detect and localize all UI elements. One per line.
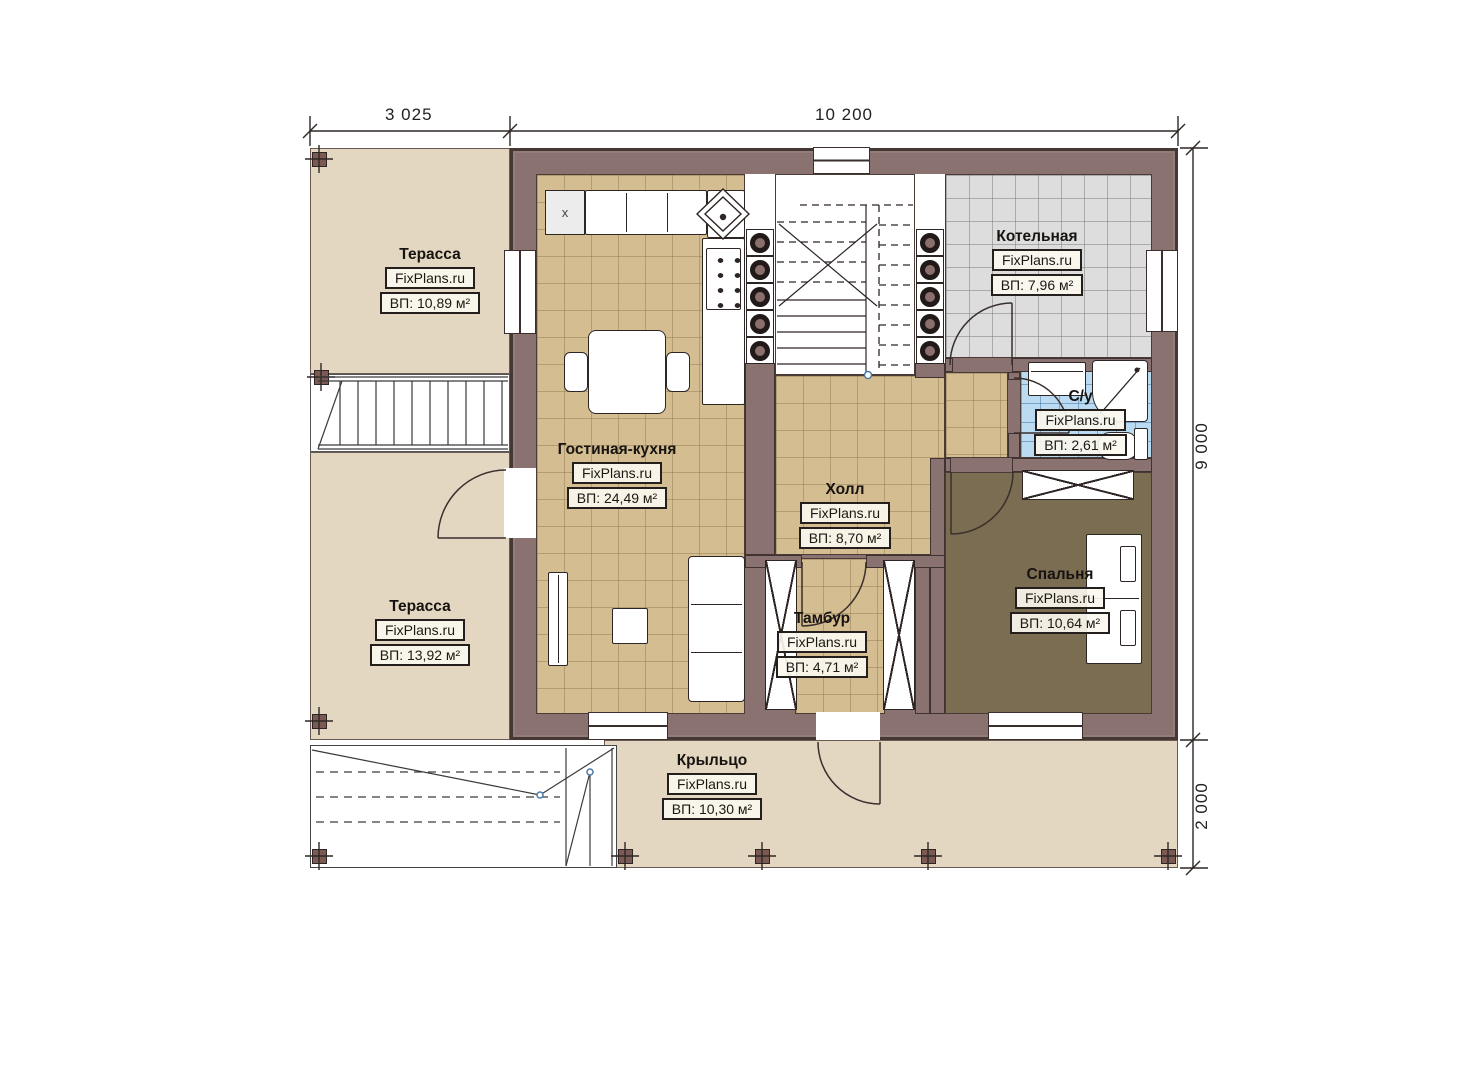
room-label-living-kitchen: Гостиная-кухня FixPlans.ru ВП: 24,49 м² bbox=[527, 441, 707, 509]
area-box: ВП: 13,92 м² bbox=[370, 644, 470, 666]
area-box: ВП: 8,70 м² bbox=[799, 527, 892, 549]
terrace-bottom-floor bbox=[310, 452, 510, 740]
room-name: Котельная bbox=[996, 228, 1077, 246]
room-label-boiler: Котельная FixPlans.ru ВП: 7,96 м² bbox=[947, 228, 1127, 296]
watermark-box: FixPlans.ru bbox=[777, 631, 867, 653]
kitchen-counter-corner bbox=[707, 190, 745, 238]
wall-bathroom-left-top bbox=[1008, 372, 1020, 380]
dim-top-left: 3 025 bbox=[385, 105, 433, 125]
log-column-icon bbox=[750, 260, 770, 280]
room-label-tambour: Тамбур FixPlans.ru ВП: 4,71 м² bbox=[762, 610, 882, 678]
stairwell-floor bbox=[775, 174, 915, 375]
post bbox=[312, 849, 327, 864]
dining-table bbox=[588, 330, 666, 414]
watermark-box: FixPlans.ru bbox=[1015, 587, 1105, 609]
room-label-terrace-top: Терасса FixPlans.ru ВП: 10,89 м² bbox=[330, 246, 530, 314]
canopy-roof-plan bbox=[310, 745, 617, 868]
column-cell bbox=[916, 337, 944, 364]
kitchen-counter-top bbox=[585, 190, 707, 235]
area-box: ВП: 4,71 м² bbox=[776, 656, 869, 678]
kitchen-cabinet-mark: x bbox=[545, 190, 585, 235]
room-name: Тамбур bbox=[794, 610, 850, 628]
post bbox=[312, 714, 327, 729]
chair bbox=[564, 352, 588, 392]
dim-right-upper: 9 000 bbox=[1192, 422, 1212, 470]
column-cell bbox=[746, 283, 774, 310]
sofa bbox=[688, 556, 745, 702]
coffee-table bbox=[612, 608, 648, 644]
area-box: ВП: 10,89 м² bbox=[380, 292, 480, 314]
wall-boiler-stub bbox=[945, 358, 953, 372]
window-top-stair bbox=[813, 147, 870, 174]
watermark-box: FixPlans.ru bbox=[572, 462, 662, 484]
log-column-icon bbox=[750, 287, 770, 307]
post bbox=[921, 849, 936, 864]
area-box: ВП: 24,49 м² bbox=[567, 487, 667, 509]
room-label-porch: Крыльцо FixPlans.ru ВП: 10,30 м² bbox=[622, 752, 802, 820]
stove bbox=[706, 248, 741, 310]
room-label-hall: Холл FixPlans.ru ВП: 8,70 м² bbox=[765, 481, 925, 549]
entrance-door-opening bbox=[816, 712, 880, 740]
log-column-icon bbox=[750, 341, 770, 361]
tv-stand bbox=[548, 572, 568, 666]
post bbox=[618, 849, 633, 864]
floor-plan-canvas: x bbox=[0, 0, 1473, 1080]
log-column-icon bbox=[920, 260, 940, 280]
watermark-box: FixPlans.ru bbox=[375, 619, 465, 641]
column-cell bbox=[916, 229, 944, 256]
column-cell bbox=[746, 337, 774, 364]
wardrobe-right bbox=[883, 560, 915, 710]
room-name: Терасса bbox=[389, 598, 450, 616]
bedroom-wardrobe bbox=[1022, 470, 1134, 500]
column-cell bbox=[916, 256, 944, 283]
column-cell bbox=[746, 229, 774, 256]
wall-bedroom-left bbox=[930, 458, 945, 714]
column-cell bbox=[746, 256, 774, 283]
hall-corridor-floor bbox=[945, 372, 1008, 458]
watermark-box: FixPlans.ru bbox=[385, 267, 475, 289]
column-cell bbox=[916, 283, 944, 310]
log-column-icon bbox=[750, 314, 770, 334]
room-name: С/у bbox=[1068, 388, 1092, 406]
column-cell bbox=[746, 310, 774, 337]
watermark-box: FixPlans.ru bbox=[667, 773, 757, 795]
log-column-icon bbox=[920, 233, 940, 253]
room-name: Холл bbox=[826, 481, 865, 499]
wall-stub-right-column bbox=[915, 363, 945, 378]
area-box: ВП: 2,61 м² bbox=[1034, 434, 1127, 456]
area-box: ВП: 10,64 м² bbox=[1010, 612, 1110, 634]
post bbox=[314, 370, 329, 385]
dim-right-lower: 2 000 bbox=[1192, 782, 1212, 830]
window-right-boiler bbox=[1146, 250, 1178, 332]
chair bbox=[666, 352, 690, 392]
exterior-stair bbox=[310, 374, 510, 452]
log-column-icon bbox=[920, 314, 940, 334]
wall-tambour-right bbox=[915, 555, 930, 714]
area-box: ВП: 7,96 м² bbox=[991, 274, 1084, 296]
log-column-icon bbox=[920, 341, 940, 361]
wall-bedroom-stub bbox=[945, 458, 951, 472]
log-column-icon bbox=[920, 287, 940, 307]
post bbox=[312, 152, 327, 167]
column-cell bbox=[916, 310, 944, 337]
window-bottom-bedroom bbox=[988, 712, 1083, 740]
room-name: Гостиная-кухня bbox=[558, 441, 677, 459]
room-label-bathroom: С/у FixPlans.ru ВП: 2,61 м² bbox=[1013, 388, 1148, 456]
area-box: ВП: 10,30 м² bbox=[662, 798, 762, 820]
room-label-terrace-bottom: Терасса FixPlans.ru ВП: 13,92 м² bbox=[320, 598, 520, 666]
room-name: Крыльцо bbox=[677, 752, 748, 770]
room-name: Терасса bbox=[399, 246, 460, 264]
watermark-box: FixPlans.ru bbox=[1035, 409, 1125, 431]
watermark-box: FixPlans.ru bbox=[800, 502, 890, 524]
watermark-box: FixPlans.ru bbox=[992, 249, 1082, 271]
post bbox=[755, 849, 770, 864]
dim-top-right: 10 200 bbox=[815, 105, 873, 125]
window-bottom-living bbox=[588, 712, 668, 740]
log-column-icon bbox=[750, 233, 770, 253]
room-label-bedroom: Спальня FixPlans.ru ВП: 10,64 м² bbox=[980, 566, 1140, 634]
post bbox=[1161, 849, 1176, 864]
room-name: Спальня bbox=[1027, 566, 1094, 584]
